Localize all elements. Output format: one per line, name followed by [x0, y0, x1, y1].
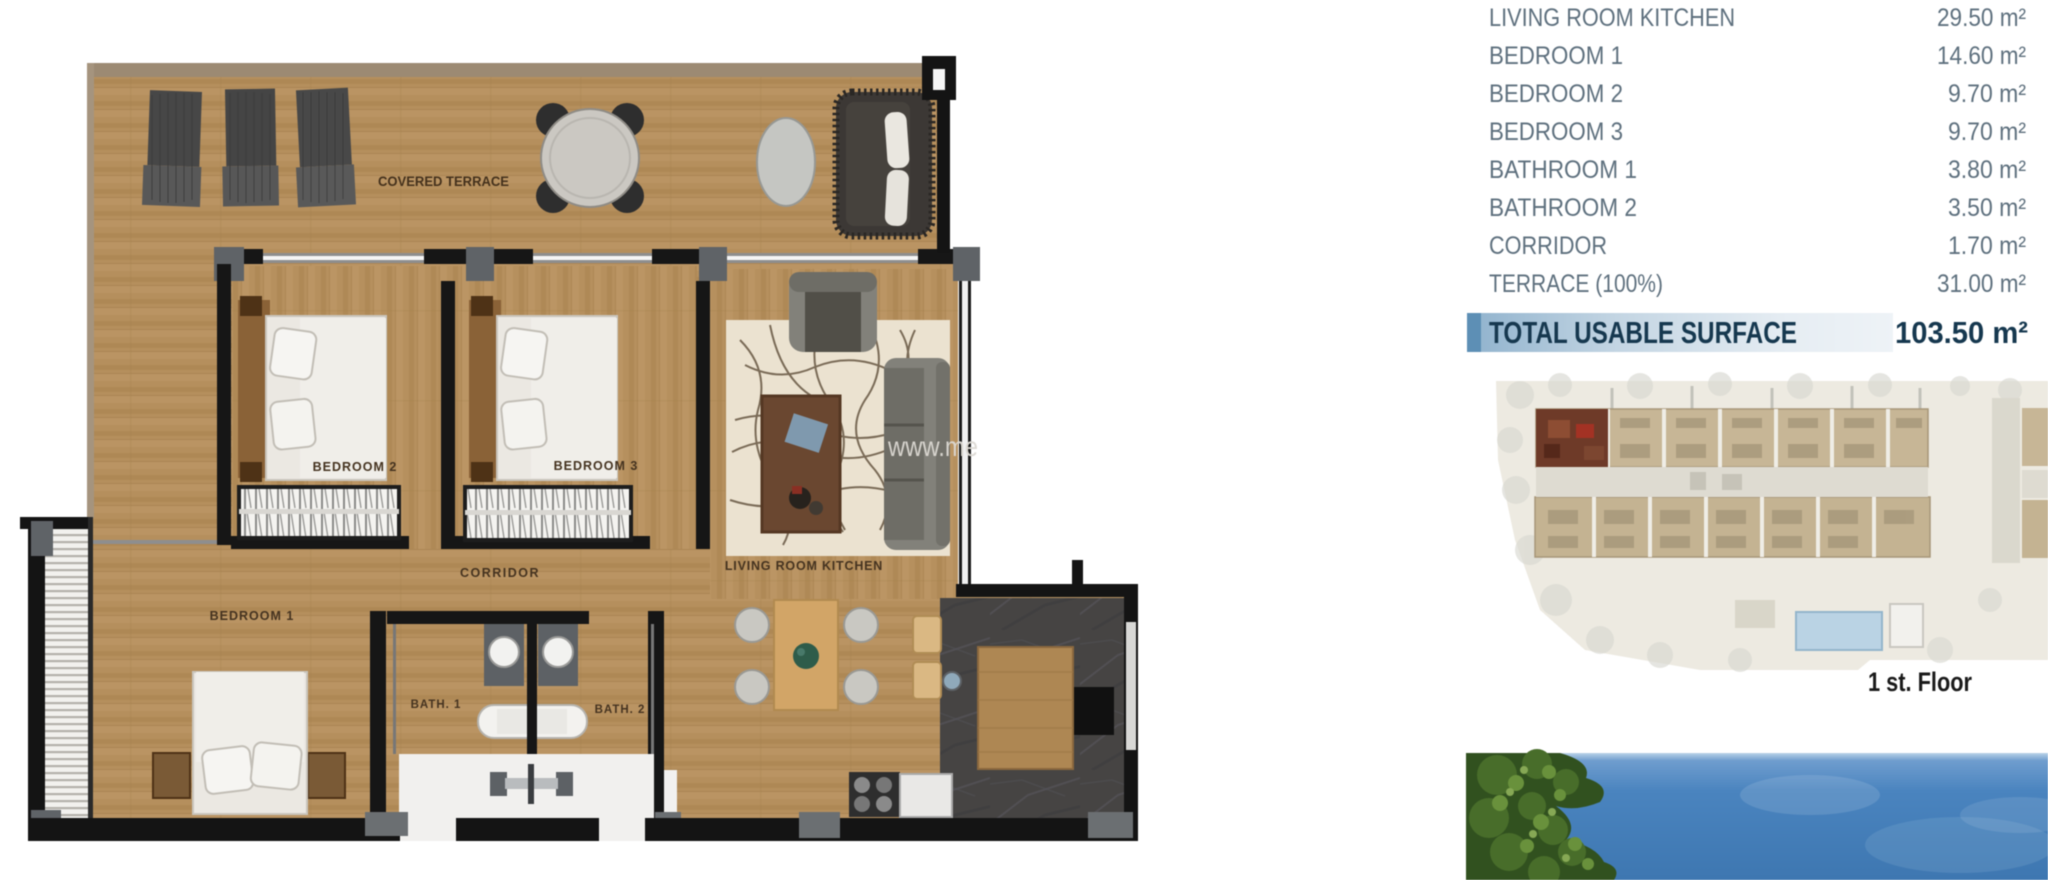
svg-text:CORRIDOR: CORRIDOR [1489, 232, 1607, 260]
svg-text:BATH. 1: BATH. 1 [411, 699, 462, 711]
svg-text:31.00 m²: 31.00 m² [1937, 270, 2026, 298]
svg-text:BEDROOM 3: BEDROOM 3 [554, 459, 639, 473]
svg-text:BEDROOM 2: BEDROOM 2 [1489, 80, 1623, 108]
svg-text:TERRACE (100%): TERRACE (100%) [1489, 270, 1663, 298]
svg-text:CORRIDOR: CORRIDOR [460, 566, 540, 580]
svg-text:3.50 m²: 3.50 m² [1948, 194, 2026, 222]
svg-text:BATHROOM 1: BATHROOM 1 [1489, 156, 1637, 184]
svg-text:14.60 m²: 14.60 m² [1937, 42, 2026, 70]
svg-text:BEDROOM 1: BEDROOM 1 [210, 609, 295, 623]
svg-text:29.50 m²: 29.50 m² [1937, 4, 2026, 32]
svg-text:103.50 m²: 103.50 m² [1895, 315, 2028, 350]
svg-text:TOTAL USABLE SURFACE: TOTAL USABLE SURFACE [1489, 315, 1797, 350]
svg-text:BEDROOM 3: BEDROOM 3 [1489, 118, 1623, 146]
svg-text:9.70 m²: 9.70 m² [1948, 118, 2026, 146]
svg-text:1.70 m²: 1.70 m² [1948, 232, 2026, 260]
svg-text:1 st. Floor: 1 st. Floor [1868, 667, 1972, 697]
svg-text:9.70 m²: 9.70 m² [1948, 80, 2026, 108]
svg-text:www.me: www.me [887, 431, 978, 462]
svg-text:BATH. 2: BATH. 2 [595, 704, 646, 716]
svg-text:3.80 m²: 3.80 m² [1948, 156, 2026, 184]
svg-text:LIVING ROOM KITCHEN: LIVING ROOM KITCHEN [725, 559, 883, 573]
svg-text:COVERED TERRACE: COVERED TERRACE [378, 174, 509, 189]
svg-text:LIVING ROOM KITCHEN: LIVING ROOM KITCHEN [1489, 4, 1735, 32]
svg-text:BATHROOM 2: BATHROOM 2 [1489, 194, 1637, 222]
svg-text:BEDROOM 2: BEDROOM 2 [313, 460, 398, 474]
svg-text:BEDROOM 1: BEDROOM 1 [1489, 42, 1623, 70]
